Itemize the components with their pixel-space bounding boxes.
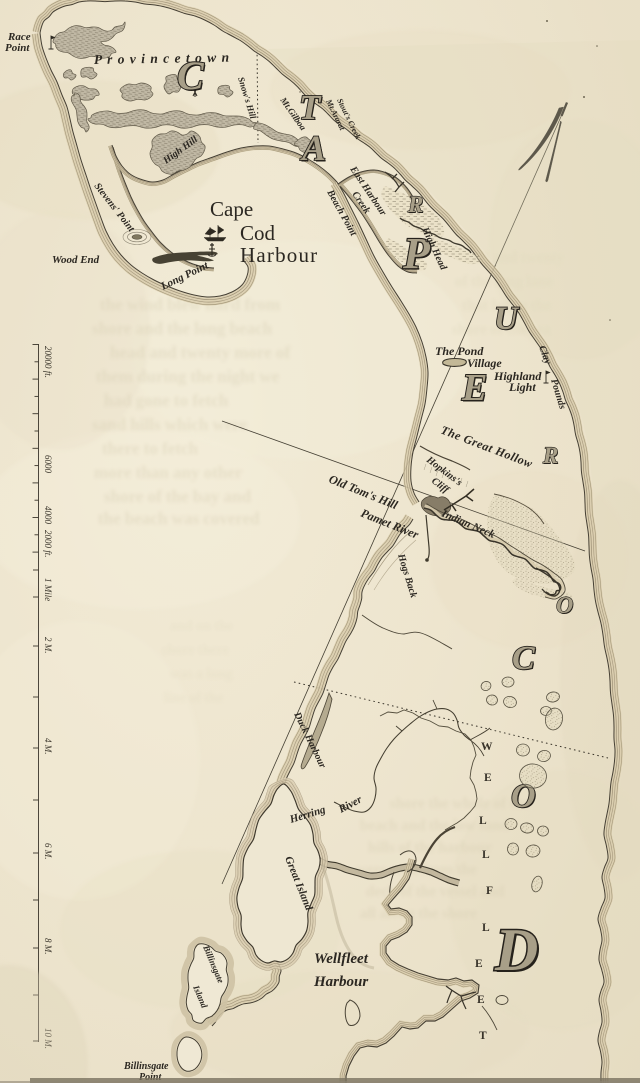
- svg-text:was a long: was a long: [170, 667, 232, 682]
- svg-text:Wood End: Wood End: [52, 254, 100, 266]
- svg-text:U: U: [494, 301, 520, 337]
- svg-text:6 M.: 6 M.: [43, 843, 53, 860]
- svg-text:4 M.: 4 M.: [43, 738, 53, 755]
- svg-text:Cape: Cape: [210, 197, 253, 221]
- svg-text:6000: 6000: [43, 455, 53, 474]
- svg-text:L: L: [482, 922, 490, 934]
- svg-text:Wellfleet: Wellfleet: [314, 951, 369, 967]
- svg-text:the beach was covered: the beach was covered: [98, 509, 260, 528]
- svg-text:2000 ft.: 2000 ft.: [43, 530, 53, 558]
- svg-text:A: A: [300, 128, 326, 168]
- svg-text:R: R: [542, 443, 558, 468]
- svg-text:and on the: and on the: [170, 619, 233, 634]
- svg-text:E: E: [475, 958, 483, 970]
- svg-text:20000 ft.: 20000 ft.: [43, 346, 53, 378]
- svg-text:R: R: [407, 192, 423, 217]
- svg-text:1 Mile: 1 Mile: [43, 578, 53, 601]
- svg-text:O: O: [556, 593, 573, 619]
- svg-text:them during the night we: them during the night we: [96, 367, 280, 386]
- svg-text:line of the: line of the: [164, 691, 223, 706]
- svg-text:shore of the bay and: shore of the bay and: [104, 487, 252, 506]
- svg-text:C: C: [512, 640, 535, 677]
- svg-text:4000: 4000: [43, 506, 53, 525]
- svg-text:L: L: [479, 815, 487, 827]
- svg-text:shore there: shore there: [162, 643, 229, 658]
- svg-text:F: F: [486, 885, 493, 897]
- svg-text:Billinsgate: Billinsgate: [123, 1061, 169, 1072]
- svg-text:8 M.: 8 M.: [43, 938, 53, 955]
- svg-text:sand hills which were: sand hills which were: [92, 415, 248, 434]
- svg-text:had gone to fetch: had gone to fetch: [104, 391, 229, 410]
- svg-text:shore the whole of the: shore the whole of the: [390, 796, 530, 812]
- svg-text:Harbour: Harbour: [313, 974, 368, 990]
- svg-text:there to fetch: there to fetch: [102, 439, 199, 458]
- svg-text:W: W: [481, 741, 493, 753]
- svg-text:Village: Village: [467, 356, 502, 370]
- svg-text:Light: Light: [508, 380, 536, 394]
- svg-text:more than any other: more than any other: [94, 463, 243, 482]
- svg-text:P r o v i n c e t o w n: P r o v i n c e t o w n: [94, 50, 230, 67]
- svg-text:E: E: [484, 772, 492, 784]
- svg-text:L: L: [482, 849, 490, 861]
- svg-text:Harbour: Harbour: [240, 243, 318, 267]
- svg-text:shore and the long beach: shore and the long beach: [92, 319, 273, 338]
- svg-text:Point: Point: [5, 42, 30, 54]
- svg-text:T: T: [479, 1030, 487, 1042]
- svg-text:head and twenty more of: head and twenty more of: [110, 343, 290, 362]
- svg-text:beach and the low sand: beach and the low sand: [360, 818, 510, 834]
- svg-text:D: D: [494, 917, 538, 983]
- svg-text:2 M.: 2 M.: [43, 637, 53, 654]
- svg-text:all along the shore: all along the shore: [360, 906, 477, 922]
- svg-text:E: E: [461, 367, 487, 409]
- svg-text:Cod: Cod: [240, 221, 276, 245]
- svg-text:E: E: [477, 994, 485, 1006]
